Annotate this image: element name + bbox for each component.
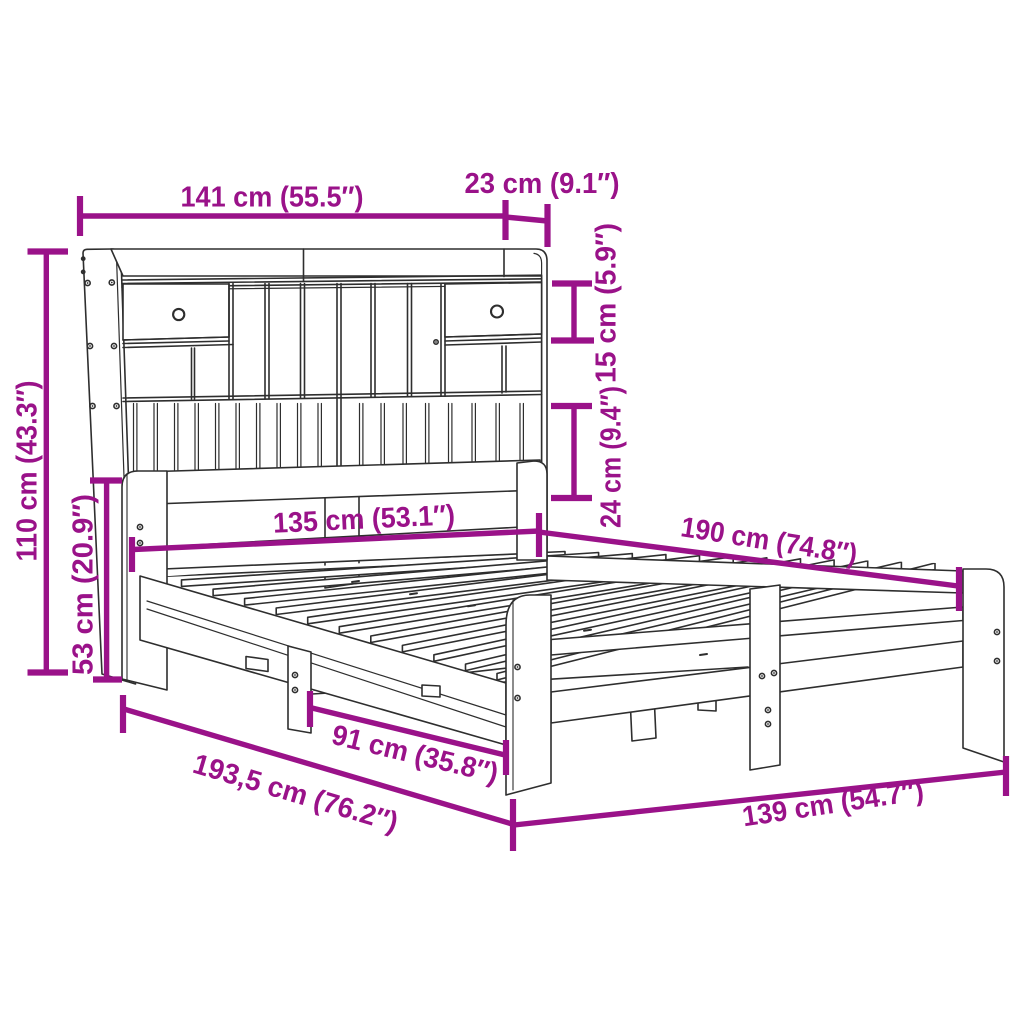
svg-text:53 cm (20.9″): 53 cm (20.9″) [68, 494, 100, 675]
svg-text:23 cm (9.1″): 23 cm (9.1″) [465, 168, 620, 200]
svg-text:110 cm (43.3″): 110 cm (43.3″) [12, 381, 44, 562]
svg-text:24 cm (9.4″): 24 cm (9.4″) [596, 386, 628, 528]
svg-text:141 cm (55.5″): 141 cm (55.5″) [181, 182, 364, 214]
svg-text:15 cm (5.9″): 15 cm (5.9″) [591, 223, 623, 383]
